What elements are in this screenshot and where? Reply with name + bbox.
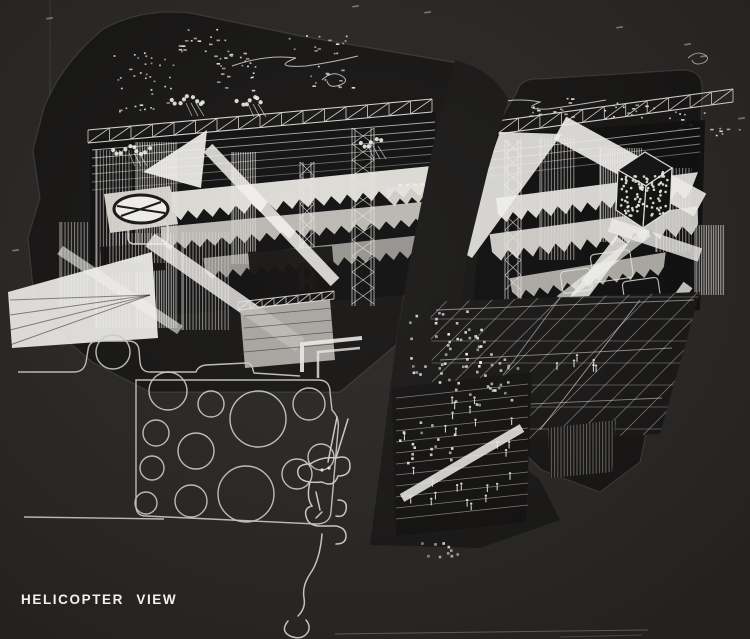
architectural-night-drawing [0,0,750,639]
caption-helicopter-view: HELICOPTER VIEW [21,592,177,607]
helicopter-view-artwork: HELICOPTER VIEW [0,0,750,639]
